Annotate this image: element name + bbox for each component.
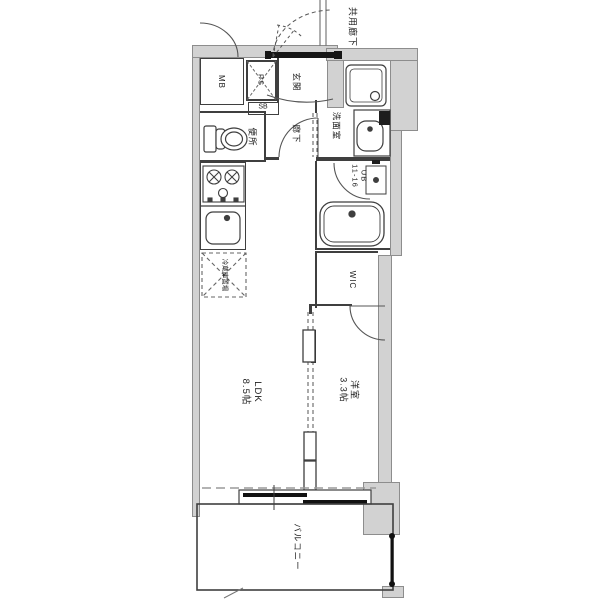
balcony-window <box>202 485 376 510</box>
label-pipe-space: PS <box>256 74 265 86</box>
ub-counter-icon <box>366 160 386 194</box>
bathtub-icon <box>320 202 384 246</box>
label-shoe-box: SB <box>258 104 267 113</box>
washbasin-icon <box>354 110 390 156</box>
balcony-partition-line <box>389 533 395 587</box>
entrance-frame-block <box>327 52 336 58</box>
floor-plan: 共用廊下 MB PS SB 玄関 廊下 便所 洗面室 UB 11-16 WIC … <box>0 0 600 600</box>
label-washroom: 洗面室 <box>331 112 342 141</box>
sink-icon <box>206 212 240 244</box>
entrance-door-hinge-left <box>265 51 271 59</box>
label-entrance: 玄関 <box>291 72 302 91</box>
entrance-door-leaf <box>271 52 334 58</box>
entrance-door-swing-dashed <box>273 10 332 57</box>
label-ldk: LDK 8.5帖 <box>239 379 263 406</box>
mb-door-arc <box>200 23 238 57</box>
label-hallway: 廊下 <box>291 124 302 143</box>
washroom-sliding-door <box>313 113 317 157</box>
wic-door <box>350 306 385 340</box>
corridor-boundary-lines <box>320 0 326 46</box>
room-partition-sliding <box>303 312 316 490</box>
label-balcony: バルコニー <box>292 523 303 570</box>
entrance-step-line <box>267 95 333 102</box>
label-unit-bath: UB 11-16 <box>350 164 369 188</box>
label-bedroom: 洋室 3.3帖 <box>337 377 360 403</box>
label-fridge: 冷蔵庫置場 <box>220 259 228 292</box>
toilet-icon <box>204 126 247 152</box>
label-corridor: 共用廊下 <box>346 7 357 47</box>
label-toilet: 便所 <box>247 127 258 146</box>
label-wic: WIC <box>347 271 357 290</box>
label-meter-box: MB <box>216 75 226 89</box>
stove-icon <box>203 166 244 202</box>
washer-pan-icon <box>346 65 386 106</box>
